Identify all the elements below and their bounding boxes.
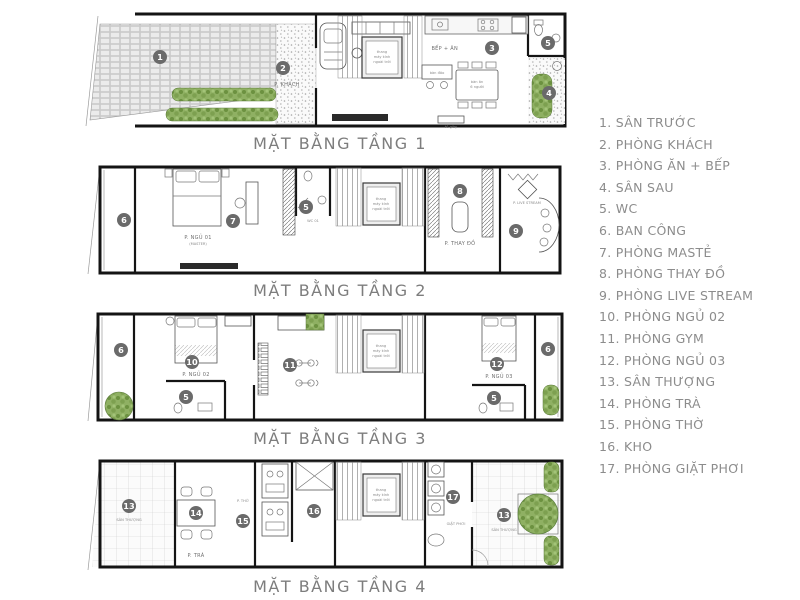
legend-item: 11. PHÒNG GYM <box>599 328 797 350</box>
floor-2-plan: thang máy kính ngoài trời P. NGỦ 01 (MAS… <box>80 158 570 284</box>
svg-text:thang: thang <box>377 50 387 54</box>
stairs <box>336 315 361 373</box>
svg-text:8: 8 <box>457 186 463 196</box>
terrace-left-tiles <box>92 461 175 567</box>
front-yard-paving <box>90 24 276 120</box>
bedroom03-label: P. NGỦ 03 <box>485 372 512 380</box>
stairs <box>404 16 422 78</box>
svg-text:ngoài trời: ngoài trời <box>372 207 389 211</box>
svg-text:2: 2 <box>280 63 286 73</box>
svg-text:15: 15 <box>237 516 249 526</box>
stairs <box>402 315 424 373</box>
svg-text:6: 6 <box>121 215 127 225</box>
svg-text:thang: thang <box>376 344 386 348</box>
badge-tea-room: 14 <box>189 506 203 520</box>
badge-wc: 5 <box>299 200 313 214</box>
floor-2-caption: MẶT BẰNG TẦNG 2 <box>100 281 580 300</box>
badge-terrace-left: 13 <box>122 499 136 513</box>
altar-cabinet <box>262 464 288 498</box>
svg-text:máy kính: máy kính <box>373 493 390 497</box>
shoe-cabinet <box>438 116 464 123</box>
wardrobe <box>283 169 295 235</box>
badge-front-yard: 1 <box>153 50 167 64</box>
svg-text:máy kính: máy kính <box>373 202 390 206</box>
svg-text:bàn đảo: bàn đảo <box>430 71 445 75</box>
floor-4-caption: MẶT BẰNG TẦNG 4 <box>100 577 580 596</box>
svg-text:9: 9 <box>513 226 519 236</box>
dumbbell-rack <box>258 343 268 395</box>
bedroom02-label: P. NGỦ 02 <box>182 370 209 378</box>
badge-gym: 11 <box>283 358 297 372</box>
svg-text:ngoài trời: ngoài trời <box>372 354 389 358</box>
svg-text:7: 7 <box>230 216 236 226</box>
terrace-left-label: SÂN THƯỢNG <box>116 517 142 522</box>
svg-text:14: 14 <box>190 508 202 518</box>
tea-room-label: P. TRÀ <box>188 552 205 559</box>
badge-backyard: 4 <box>542 86 556 100</box>
laundry-sink <box>428 534 444 546</box>
livestream-label: P. LIVE STREAM <box>513 201 541 205</box>
badge-laundry: 17 <box>446 490 460 504</box>
badge-altar-room: 15 <box>236 514 250 528</box>
legend-item: 10. PHÒNG NGỦ 02 <box>599 306 797 328</box>
svg-text:ngoài trời: ngoài trời <box>373 60 390 64</box>
shoe-cabinet-label: tủ giày <box>445 125 458 129</box>
badge-bedroom02: 10 <box>185 355 199 369</box>
svg-text:6: 6 <box>118 345 124 355</box>
living-room-label: P. KHÁCH <box>274 81 299 88</box>
badge-balcony-left: 6 <box>114 343 128 357</box>
clothes-rack <box>508 174 538 180</box>
svg-text:thang: thang <box>376 197 386 201</box>
floor-1-caption: MẶT BẰNG TẦNG 1 <box>100 134 580 153</box>
legend-item: 3. PHÒNG ĂN + BẾP <box>599 155 797 177</box>
badge-wc-left: 5 <box>179 390 193 404</box>
floor-3-caption: MẶT BẰNG TẦNG 3 <box>100 429 580 448</box>
badge-bedroom03: 12 <box>490 357 504 371</box>
badge-livestream: 9 <box>509 224 523 238</box>
kitchen-label: BẾP + ĂN <box>431 44 458 52</box>
legend-item: 6. BAN CÔNG <box>599 220 797 242</box>
exercise-bike <box>296 360 318 366</box>
exercise-bike <box>296 380 318 386</box>
kitchen-counter <box>425 16 528 34</box>
floor-3-plan: thang máy kính ngoài trời P. NGỦ 02 P. N… <box>80 305 570 431</box>
svg-text:13: 13 <box>123 501 135 511</box>
curved-sofa <box>539 198 559 252</box>
legend-item: 7. PHÒNG MASTẺ <box>599 242 797 264</box>
terrace-right-label: SÂN THƯỢNG <box>491 527 517 532</box>
cabinet <box>225 316 251 326</box>
legend-item: 5. WC <box>599 198 797 220</box>
floor-1-plan: thang máy kính ngoài trời bàn đảo bàn ăn… <box>80 8 570 138</box>
svg-text:3: 3 <box>489 43 495 53</box>
legend-item: 15. PHÒNG THỜ <box>599 414 797 436</box>
glass-elevator: thang máy kính ngoài trời <box>363 330 400 372</box>
svg-text:ngoài trời: ngoài trời <box>372 498 389 502</box>
glass-elevator: thang máy kính ngoài trời <box>363 474 400 516</box>
storage-closet <box>296 462 333 490</box>
stairs <box>338 16 362 78</box>
legend-item: 17. PHÒNG GIẶT PHƠI <box>599 458 797 480</box>
legend-item: 9. PHÒNG LIVE STREAM <box>599 285 797 307</box>
svg-text:17: 17 <box>447 492 459 502</box>
wardrobe <box>482 169 493 237</box>
dressing-island <box>452 202 468 232</box>
legend-item: 1. SÂN TRƯỚC <box>599 112 797 134</box>
wardrobe <box>428 169 439 237</box>
svg-text:4: 4 <box>546 88 552 98</box>
svg-text:máy kính: máy kính <box>374 55 391 59</box>
badge-closet: 8 <box>453 184 467 198</box>
badge-living: 2 <box>276 61 290 75</box>
floor-plan-sheet: thang máy kính ngoài trời bàn đảo bàn ăn… <box>0 0 800 600</box>
legend-item: 8. PHÒNG THAY ĐỒ <box>599 263 797 285</box>
stairs <box>402 462 424 520</box>
wc-fixtures <box>174 403 212 413</box>
svg-text:11: 11 <box>284 360 296 370</box>
legend-item: 16. KHO <box>599 436 797 458</box>
svg-text:bàn ăn: bàn ăn <box>471 80 483 84</box>
stairs <box>402 168 424 226</box>
badge-wc-right: 5 <box>487 391 501 405</box>
hedge-row <box>166 108 278 121</box>
legend-item: 14. PHÒNG TRÀ <box>599 393 797 415</box>
svg-text:13: 13 <box>498 510 510 520</box>
legend: 1. SÂN TRƯỚC 2. PHÒNG KHÁCH 3. PHÒNG ĂN … <box>599 112 797 479</box>
kitchen-island: bàn đảo <box>422 65 452 89</box>
svg-text:thang: thang <box>376 488 386 492</box>
svg-text:máy kính: máy kính <box>373 349 390 353</box>
svg-text:10: 10 <box>186 357 198 367</box>
tree <box>518 494 558 534</box>
tv-cabinet <box>180 263 238 269</box>
stairs <box>336 462 361 520</box>
badge-balcony-right: 6 <box>541 342 555 356</box>
bed <box>482 316 516 361</box>
tree <box>105 392 133 420</box>
washing-machines <box>428 462 444 515</box>
tv-cabinet <box>332 114 388 121</box>
wc-sink <box>166 317 174 325</box>
dining-table: bàn ăn 6 người <box>456 62 498 108</box>
master-bedroom-sublabel: (MASTER) <box>189 242 207 246</box>
legend-item: 13. SÂN THƯỢNG <box>599 371 797 393</box>
altar-room-label: P. THỜ <box>237 498 249 503</box>
bed <box>165 169 229 226</box>
svg-text:1: 1 <box>157 52 163 62</box>
closet-label: P. THAY ĐỒ <box>445 238 476 247</box>
legend-item: 2. PHÒNG KHÁCH <box>599 134 797 156</box>
badge-storage: 16 <box>307 504 321 518</box>
badge-wc: 5 <box>541 36 555 50</box>
svg-text:5: 5 <box>491 393 497 403</box>
master-bedroom-label: P. NGỦ 01 <box>184 233 211 241</box>
svg-text:5: 5 <box>303 202 309 212</box>
legend-item: 12. PHÒNG NGỦ 03 <box>599 350 797 372</box>
badge-balcony: 6 <box>117 213 131 227</box>
svg-text:5: 5 <box>183 392 189 402</box>
glass-elevator: thang máy kính ngoài trời <box>363 183 400 225</box>
badge-master: 7 <box>226 214 240 228</box>
svg-text:16: 16 <box>308 506 320 516</box>
floor-4-plan: thang máy kính ngoài trời SÂN THƯỢNG P. … <box>80 452 570 582</box>
bed <box>175 316 217 363</box>
glass-elevator: thang máy kính ngoài trời <box>362 37 402 78</box>
planter <box>306 314 324 330</box>
laundry-label: GIẶT PHƠI <box>447 521 466 526</box>
badge-kitchen: 3 <box>485 41 499 55</box>
altar-cabinet <box>262 502 288 536</box>
svg-text:6 người: 6 người <box>470 85 483 89</box>
stream-table <box>518 180 536 198</box>
svg-text:5: 5 <box>545 38 551 48</box>
badge-terrace-right: 13 <box>497 508 511 522</box>
stairs <box>336 168 361 226</box>
legend-item: 4. SÂN SAU <box>599 177 797 199</box>
svg-text:6: 6 <box>545 344 551 354</box>
balcony-plants <box>543 385 559 415</box>
wc01-label: WC 01 <box>307 219 319 223</box>
svg-text:12: 12 <box>491 359 502 369</box>
terrace-plants <box>544 462 559 492</box>
hedge-row <box>172 88 276 101</box>
terrace-plants <box>544 536 559 565</box>
